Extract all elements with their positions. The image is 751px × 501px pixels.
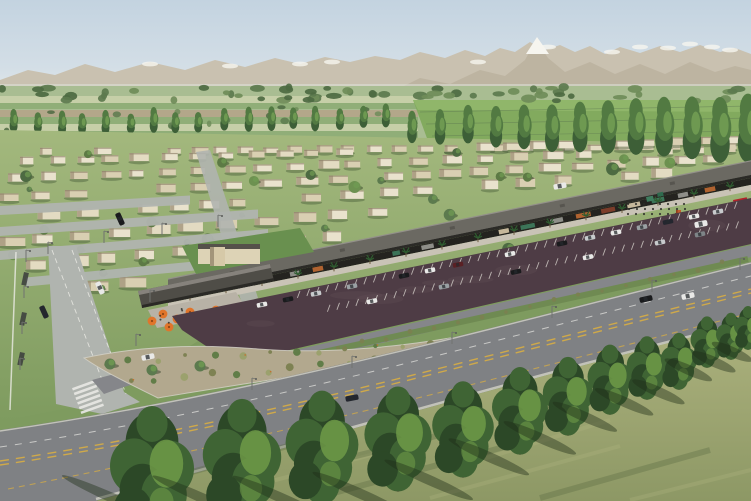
house [258,179,283,190]
house [417,146,434,155]
house [318,160,341,172]
house [571,163,594,173]
house [31,234,53,246]
house [108,228,131,240]
patio-umbrella [165,323,174,332]
house [327,210,348,223]
house [262,147,279,156]
house [538,163,562,175]
house [438,169,462,180]
house [377,158,392,169]
house [542,151,565,162]
house [41,172,57,184]
house [293,212,318,225]
house [129,170,145,180]
house [101,171,123,181]
house [642,157,660,169]
house [367,208,388,219]
house [0,193,20,204]
house [155,184,176,196]
house [620,172,639,183]
house [69,172,88,183]
house [128,153,149,164]
rendering-stage [0,0,751,501]
house [253,217,279,228]
house [391,145,407,155]
house [502,143,521,154]
house [383,172,404,183]
house [442,155,463,167]
house [101,155,120,165]
aerial-rendering [0,0,751,501]
house [322,231,342,244]
house [248,150,265,160]
house [575,150,592,161]
house [505,165,524,176]
patio-umbrella [159,310,168,319]
house [477,155,494,165]
house [509,152,529,164]
house [304,150,319,159]
house [301,194,322,205]
house [344,161,361,171]
house [39,148,52,158]
house [69,232,91,244]
house [408,157,429,168]
patio-umbrella [148,317,157,326]
house [328,176,349,187]
house [469,167,489,179]
house [252,164,272,174]
house [276,150,295,160]
house [161,153,178,163]
house [118,277,147,291]
house [25,260,47,273]
house [316,145,333,155]
house [286,163,305,173]
house [158,168,176,178]
house [19,157,34,168]
house [379,187,399,199]
house [336,148,354,158]
house [221,182,243,192]
house [529,141,546,152]
house [481,179,499,192]
house [0,237,27,249]
house [366,145,382,155]
house [229,199,246,210]
house [64,190,89,201]
house [77,157,95,166]
house [30,192,50,203]
house [50,156,66,167]
house [97,253,116,266]
house [411,171,432,182]
house [224,165,246,175]
